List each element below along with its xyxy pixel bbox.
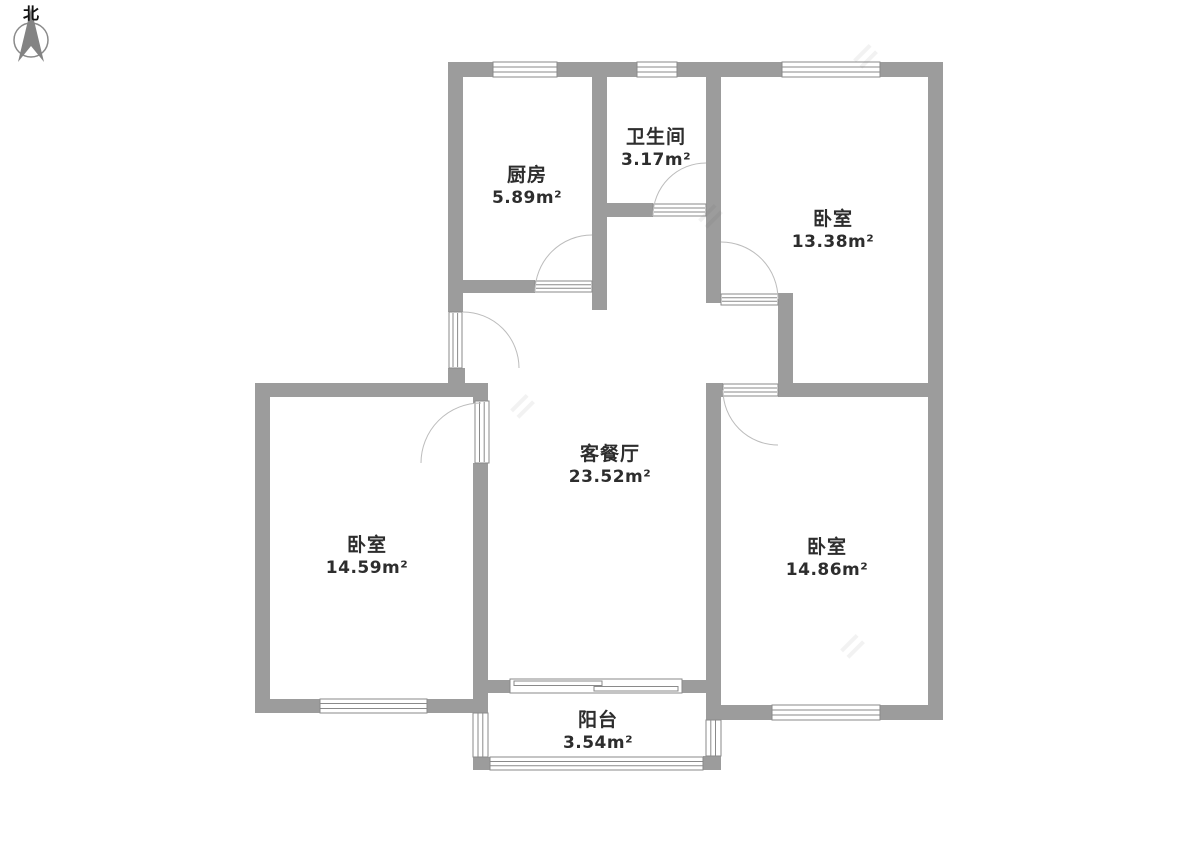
- floor-plan-drawing: [0, 0, 1200, 860]
- compass: 北: [0, 0, 70, 80]
- wall-kitchen-bottom: [463, 280, 535, 293]
- wall-balcony-corner-right: [703, 756, 721, 770]
- sliding-door-balcony: [510, 679, 682, 693]
- window-balcony-bottom: [490, 757, 703, 770]
- wall-balcony-corner-left: [473, 757, 490, 770]
- wall-bedrooml-left: [255, 397, 270, 713]
- wall-bathroom-right: [706, 77, 721, 303]
- wall-balcony-top-right: [682, 680, 721, 693]
- window-bathroom-top: [637, 62, 677, 77]
- wall-bathroom-bottom: [607, 203, 653, 217]
- wall-bedroomtr-door-stub: [778, 293, 793, 390]
- window-balcony-left: [473, 713, 488, 757]
- wall-kitchen-left: [448, 77, 463, 312]
- window-bedroomr-bottom: [772, 705, 880, 720]
- window-bedrooml-bottom: [320, 699, 427, 713]
- door-bathroom: [653, 163, 706, 216]
- window-kitchen-top: [493, 62, 557, 77]
- door-bedroom-right: [723, 384, 778, 445]
- door-bedroom-left: [421, 401, 489, 463]
- door-kitchen: [535, 235, 592, 292]
- floor-plan-canvas: 北 厨房 5.89m² 卫生间 3.17m² 卧室 13.38m² 客餐厅 23…: [0, 0, 1200, 860]
- wall-bedrooml-right: [473, 463, 488, 713]
- wall-bedroomr-top-left: [706, 383, 723, 397]
- window-bedroomtr-top: [782, 62, 880, 77]
- wall-bedroomtr-bottom: [778, 383, 928, 397]
- wall-kitchen-bathroom: [592, 77, 607, 310]
- door-bedroom-top-right: [721, 242, 778, 305]
- walls: [255, 62, 943, 770]
- wall-balcony-top-left: [473, 680, 510, 693]
- wall-bedrooml-top: [255, 383, 488, 397]
- compass-north-label: 北: [23, 0, 39, 24]
- window-balcony-right: [706, 720, 721, 756]
- wall-exterior-right: [928, 62, 943, 720]
- wall-central-vertical: [706, 397, 721, 720]
- door-entry: [449, 312, 519, 368]
- wall-entry-stub: [448, 368, 465, 383]
